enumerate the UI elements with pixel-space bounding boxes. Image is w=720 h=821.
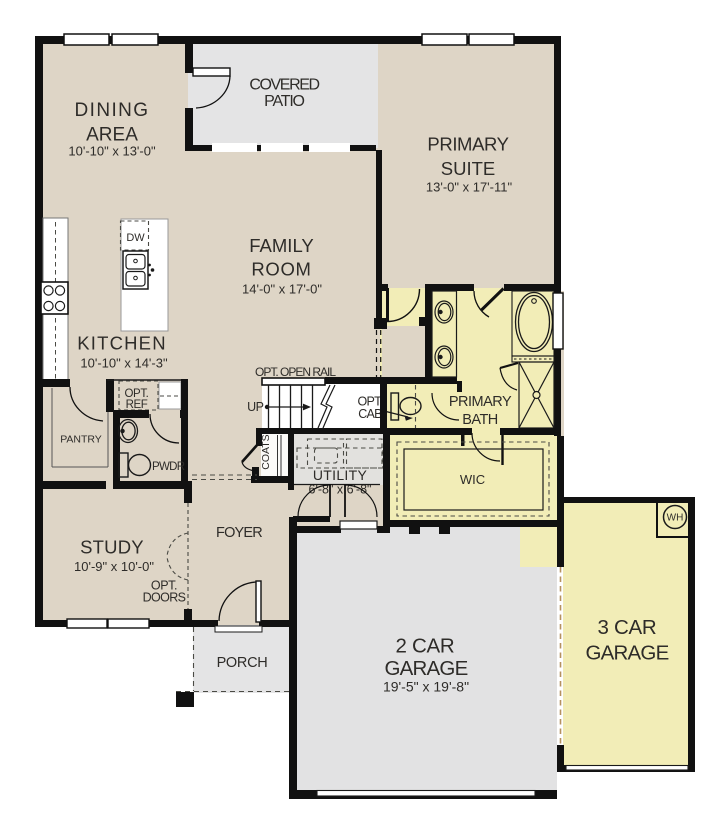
svg-text:AREA: AREA — [86, 125, 138, 146]
svg-text:WH: WH — [667, 513, 684, 524]
svg-text:CAB: CAB — [358, 407, 382, 421]
svg-text:STUDY: STUDY — [80, 537, 144, 558]
svg-text:PANTRY: PANTRY — [60, 434, 102, 446]
svg-text:DINING: DINING — [75, 100, 150, 121]
svg-text:PORCH: PORCH — [217, 655, 268, 671]
svg-text:10'-9" x 10'-0": 10'-9" x 10'-0" — [74, 559, 154, 574]
svg-text:DOORS: DOORS — [143, 591, 186, 605]
svg-text:FAMILY: FAMILY — [249, 235, 313, 256]
svg-text:COATS: COATS — [260, 434, 272, 469]
svg-text:GARAGE: GARAGE — [385, 657, 468, 680]
svg-text:UP: UP — [247, 400, 264, 414]
svg-text:13'-0" x 17'-11": 13'-0" x 17'-11" — [426, 180, 513, 195]
svg-text:OPT. OPEN RAIL: OPT. OPEN RAIL — [255, 365, 336, 379]
svg-text:BATH: BATH — [462, 412, 498, 428]
svg-text:PATIO: PATIO — [264, 93, 304, 110]
svg-text:ROOM: ROOM — [251, 259, 311, 280]
svg-text:14'-0" x 17'-0": 14'-0" x 17'-0" — [242, 282, 322, 297]
svg-text:REF: REF — [126, 399, 148, 411]
svg-text:KITCHEN: KITCHEN — [77, 333, 167, 354]
svg-text:WIC: WIC — [460, 472, 485, 487]
svg-text:GARAGE: GARAGE — [586, 642, 669, 665]
svg-text:SUITE: SUITE — [441, 158, 495, 179]
svg-text:PRIMARY: PRIMARY — [427, 134, 508, 155]
svg-text:10'-10" x 13'-0": 10'-10" x 13'-0" — [68, 144, 156, 159]
svg-text:FOYER: FOYER — [216, 525, 262, 541]
svg-text:DW: DW — [126, 232, 145, 244]
svg-text:UTILITY: UTILITY — [313, 467, 368, 483]
svg-text:COVERED: COVERED — [249, 77, 319, 94]
svg-text:PWDR: PWDR — [152, 461, 185, 473]
svg-text:PRIMARY: PRIMARY — [449, 394, 512, 410]
svg-text:3 CAR: 3 CAR — [598, 616, 657, 639]
svg-text:10'-10" x 14'-3": 10'-10" x 14'-3" — [80, 356, 168, 371]
svg-text:2 CAR: 2 CAR — [396, 635, 455, 658]
svg-text:19'-5" x 19'-8": 19'-5" x 19'-8" — [383, 679, 469, 695]
